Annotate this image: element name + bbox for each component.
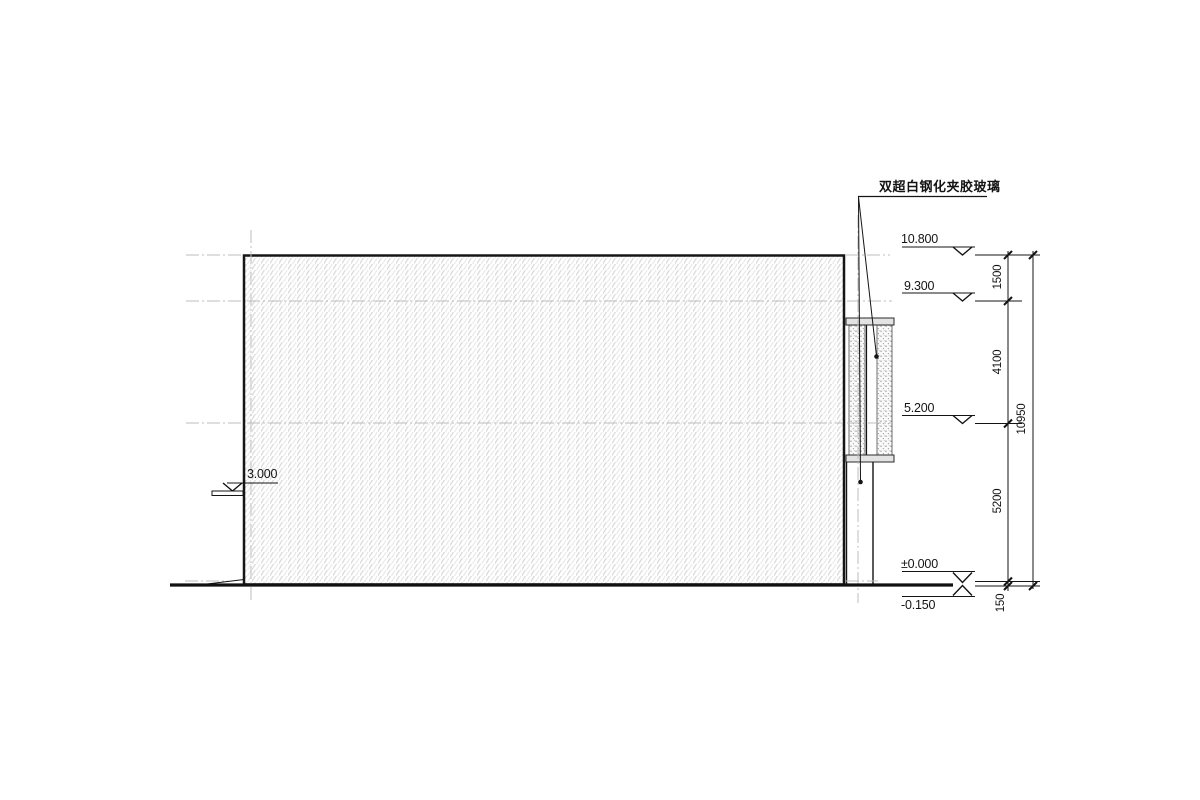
elevation-label-3000: 3.000	[247, 467, 277, 481]
mullion-right	[877, 325, 892, 455]
elevation-drawing: 双超白钢化夹胶玻璃 10.800 9.300 5.200 3.000 ±0.00…	[0, 0, 1200, 800]
dimension-lines	[975, 251, 1040, 591]
level-triangle-10800	[953, 247, 972, 255]
mullion-left	[849, 325, 865, 455]
elevation-label-9300: 9.300	[904, 279, 934, 293]
dim-label-1500: 1500	[991, 242, 1005, 312]
leader-dot-2	[858, 480, 863, 485]
elevation-label-10800: 10.800	[901, 232, 938, 246]
glass-note-label: 双超白钢化夹胶玻璃	[879, 176, 1001, 195]
elevation-label-zero: ±0.000	[901, 557, 938, 571]
level-triangle-9300	[953, 293, 972, 301]
curtain-wall-section	[846, 318, 894, 584]
leader-dot-1	[874, 354, 879, 359]
building-wall-hatch	[244, 256, 844, 585]
level-triangle-5200	[953, 416, 972, 424]
level-triangle-3000	[223, 483, 242, 491]
glass-bottom-cap	[846, 455, 894, 462]
level-triangle-minus150	[953, 586, 972, 596]
dim-label-4100: 4100	[991, 327, 1005, 397]
dim-label-150: 150	[994, 568, 1008, 638]
dim-label-10950: 10950	[1015, 384, 1029, 454]
elevation-label-minus150: -0.150	[901, 598, 935, 612]
dim-label-5200: 5200	[991, 466, 1005, 536]
elevation-label-5200: 5.200	[904, 401, 934, 415]
canopy-slab	[212, 491, 243, 496]
building-wall	[244, 256, 844, 585]
level-triangle-zero	[953, 573, 972, 583]
glass-top-cap	[846, 318, 894, 325]
